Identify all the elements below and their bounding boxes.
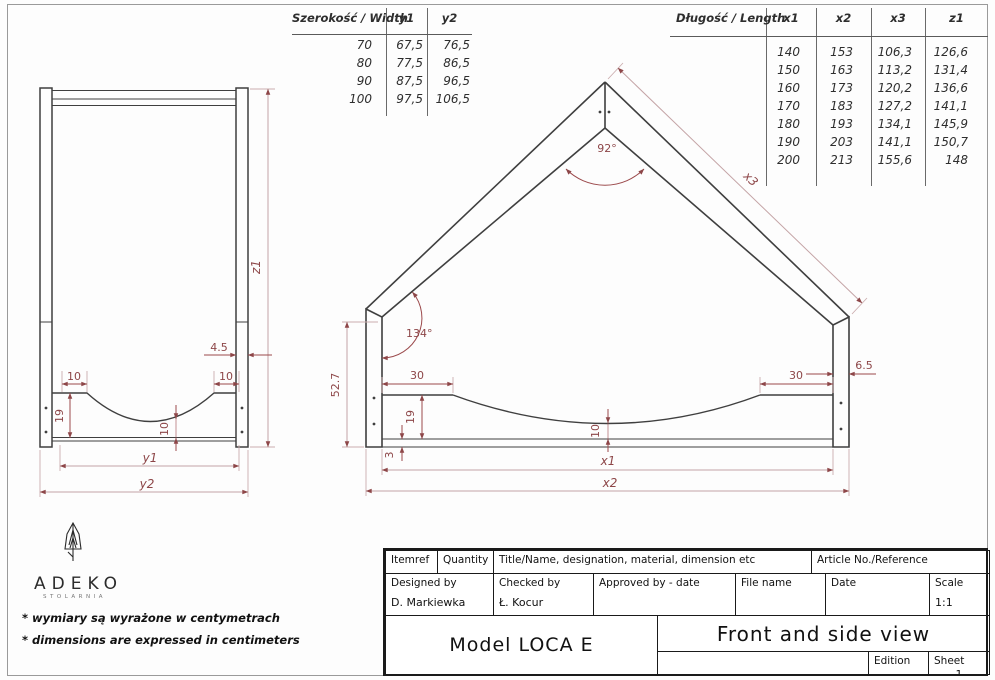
table-cell: 150,7 (925, 135, 988, 153)
table-cell: 106,3 (871, 45, 925, 63)
table-cell: 80 (292, 56, 386, 74)
table-cell: 153 (816, 45, 871, 63)
file-name-cell: File name (735, 573, 826, 616)
title-block: Itemref Quantity Title/Name, designation… (383, 548, 988, 676)
table-cell (670, 117, 766, 135)
table-cell: 193 (816, 117, 871, 135)
dim-apex-angle: 92° (597, 142, 617, 155)
table-cell: 200 (766, 153, 816, 171)
table-cell: 173 (816, 81, 871, 99)
quantity-cell: Quantity (437, 550, 494, 574)
dim-x1: x1 (600, 454, 616, 468)
sheet-cell: Sheet 1 (928, 651, 990, 675)
table-cell: 203 (816, 135, 871, 153)
table-cell: 131,4 (925, 63, 988, 81)
table-cell: 180 (766, 117, 816, 135)
table-row: 7067,576,5 (292, 38, 472, 56)
table-cell: 150 (766, 63, 816, 81)
company-logo: ADEKO STOLARNIA (28, 521, 118, 600)
table-row: 150163113,2131,4 (670, 63, 988, 81)
table-cell: 213 (816, 153, 871, 171)
front-bottom-rail (52, 438, 236, 442)
article-cell: Article No./Reference (811, 550, 990, 574)
dimension-lines-short (62, 169, 876, 461)
table-cell: 160 (766, 81, 816, 99)
table-cell: 170 (766, 99, 816, 117)
edition-label: Edition (874, 655, 923, 667)
side-right-post (833, 317, 849, 447)
table-cell: 145,9 (925, 117, 988, 135)
sheet-label: Sheet (934, 655, 984, 667)
column-header: Szerokość / Width (292, 11, 386, 25)
table-cell: 140 (766, 45, 816, 63)
dim-x2: x2 (602, 476, 618, 490)
logo-subtitle: STOLARNIA (28, 594, 118, 600)
length-table-rows: 140153106,3126,6150163113,2131,416017312… (670, 45, 988, 171)
dim-y1: y1 (142, 451, 158, 465)
table-cell: 77,5 (386, 56, 427, 74)
table-cell: 126,6 (925, 45, 988, 63)
pine-tree-icon (58, 521, 88, 569)
empty-cell (657, 651, 869, 675)
approved-by-label: Approved by - date (599, 577, 730, 589)
table-row: 190203141,1150,7 (670, 135, 988, 153)
itemref-cell: Itemref (385, 550, 438, 574)
table-cell: 70 (292, 38, 386, 56)
dim-side-post-width: 6.5 (855, 359, 873, 372)
dim-front-flat-left: 10 (67, 370, 81, 383)
table-row: 10097,5106,5 (292, 92, 472, 110)
dim-front-board-height: 19 (53, 409, 66, 423)
table-cell: 141,1 (871, 135, 925, 153)
angle-arc-92 (566, 169, 644, 185)
front-top-rails (52, 91, 236, 106)
table-cell: 134,1 (871, 117, 925, 135)
date-cell: Date (825, 573, 930, 616)
table-cell: 155,6 (871, 153, 925, 171)
dim-rail-thickness: 3 (383, 452, 396, 459)
table-row: 140153106,3126,6 (670, 45, 988, 63)
table-cell (670, 135, 766, 153)
checked-by-label: Checked by (499, 577, 588, 589)
table-cell: 106,5 (427, 92, 472, 110)
note-pl: * wymiary są wyrażone w centymetrach (22, 611, 300, 625)
table-cell: 148 (925, 153, 988, 171)
table-cell: 190 (766, 135, 816, 153)
width-table-header: Szerokość / Width y1 y2 (292, 11, 472, 25)
column-header: x1 (766, 11, 816, 25)
table-cell (670, 81, 766, 99)
table-cell (670, 63, 766, 81)
side-left-post (366, 309, 382, 447)
column-header: z1 (925, 11, 988, 25)
dim-front-post-width: 4.5 (210, 341, 228, 354)
length-table-header: Długość / Length x1 x2 x3 z1 (670, 11, 988, 25)
table-cell: 113,2 (871, 63, 925, 81)
column-header: x2 (816, 11, 871, 25)
front-left-post (40, 88, 52, 447)
designed-by-value: D. Markiewka (391, 596, 488, 609)
table-cell: 120,2 (871, 81, 925, 99)
scale-label: Scale (935, 577, 984, 589)
table-cell (670, 153, 766, 171)
dim-front-curve-depth: 10 (158, 422, 171, 436)
designed-by-label: Designed by (391, 577, 488, 589)
front-curved-board (52, 393, 236, 422)
table-row: 200213155,6148 (670, 153, 988, 171)
checked-by-value: Ł. Kocur (499, 596, 588, 609)
table-cell: 96,5 (427, 74, 472, 92)
table-cell: 136,6 (925, 81, 988, 99)
column-header: y2 (427, 11, 472, 25)
table-row: 8077,586,5 (292, 56, 472, 74)
table-cell: 86,5 (427, 56, 472, 74)
title-name-cell: Title/Name, designation, material, dimen… (493, 550, 812, 574)
logo-text: ADEKO (28, 574, 118, 594)
table-cell: 87,5 (386, 74, 427, 92)
view-title: Front and side view (717, 622, 930, 646)
table-row: 170183127,2141,1 (670, 99, 988, 117)
front-view-outline (40, 88, 248, 447)
table-cell (670, 99, 766, 117)
table-header-rule (670, 36, 988, 37)
table-cell: 100 (292, 92, 386, 110)
dim-side-flat-right: 30 (789, 369, 803, 382)
model-name: Model LOCA E (449, 634, 593, 656)
date-label: Date (831, 577, 924, 589)
dim-side-height: 52.7 (329, 373, 342, 398)
dim-side-curve-depth: 10 (589, 424, 602, 438)
scale-value: 1:1 (935, 596, 984, 609)
drawing-sheet: { "colors": { "line": "#3f3f3f", "dim_te… (0, 0, 995, 680)
table-cell (670, 45, 766, 63)
angle-arc-134 (382, 292, 422, 358)
front-right-post (236, 88, 248, 447)
edition-cell: Edition (868, 651, 929, 675)
table-cell: 76,5 (427, 38, 472, 56)
dim-front-flat-right: 10 (219, 370, 233, 383)
table-cell: 90 (292, 74, 386, 92)
table-row: 160173120,2136,6 (670, 81, 988, 99)
dim-y2: y2 (139, 477, 155, 491)
table-cell: 141,1 (925, 99, 988, 117)
approved-by-cell: Approved by - date (593, 573, 736, 616)
length-table: Długość / Length x1 x2 x3 z1 140153106,3… (670, 8, 988, 188)
table-header-rule (292, 34, 472, 35)
view-title-cell: Front and side view (657, 615, 990, 652)
article-label: Article No./Reference (817, 554, 928, 566)
table-cell: 67,5 (386, 38, 427, 56)
footnotes: * wymiary są wyrażone w centymetrach * d… (22, 611, 300, 655)
width-table: Szerokość / Width y1 y2 7067,576,58077,5… (292, 8, 472, 118)
sheet-value: 1 (934, 668, 984, 675)
table-row: 9087,596,5 (292, 74, 472, 92)
checked-by-cell: Checked by Ł. Kocur (493, 573, 594, 616)
quantity-label: Quantity (443, 554, 488, 566)
column-header: y1 (386, 11, 427, 25)
dim-side-flat-left: 30 (410, 369, 424, 382)
scale-cell: Scale 1:1 (929, 573, 990, 616)
note-en: * dimensions are expressed in centimeter… (22, 633, 300, 647)
column-header: x3 (871, 11, 925, 25)
dim-z1: z1 (249, 260, 263, 275)
table-cell: 183 (816, 99, 871, 117)
file-name-label: File name (741, 577, 820, 589)
model-cell: Model LOCA E (385, 615, 658, 675)
itemref-label: Itemref (391, 554, 429, 566)
table-cell: 163 (816, 63, 871, 81)
table-row: 180193134,1145,9 (670, 117, 988, 135)
column-header: Długość / Length (670, 11, 766, 25)
table-cell: 127,2 (871, 99, 925, 117)
dim-side-board-height: 19 (404, 410, 417, 424)
title-name-label: Title/Name, designation, material, dimen… (499, 554, 755, 566)
designed-by-cell: Designed by D. Markiewka (385, 573, 494, 616)
table-cell: 97,5 (386, 92, 427, 110)
width-table-rows: 7067,576,58077,586,59087,596,510097,5106… (292, 38, 472, 110)
dim-eave-angle: 134° (406, 327, 433, 340)
